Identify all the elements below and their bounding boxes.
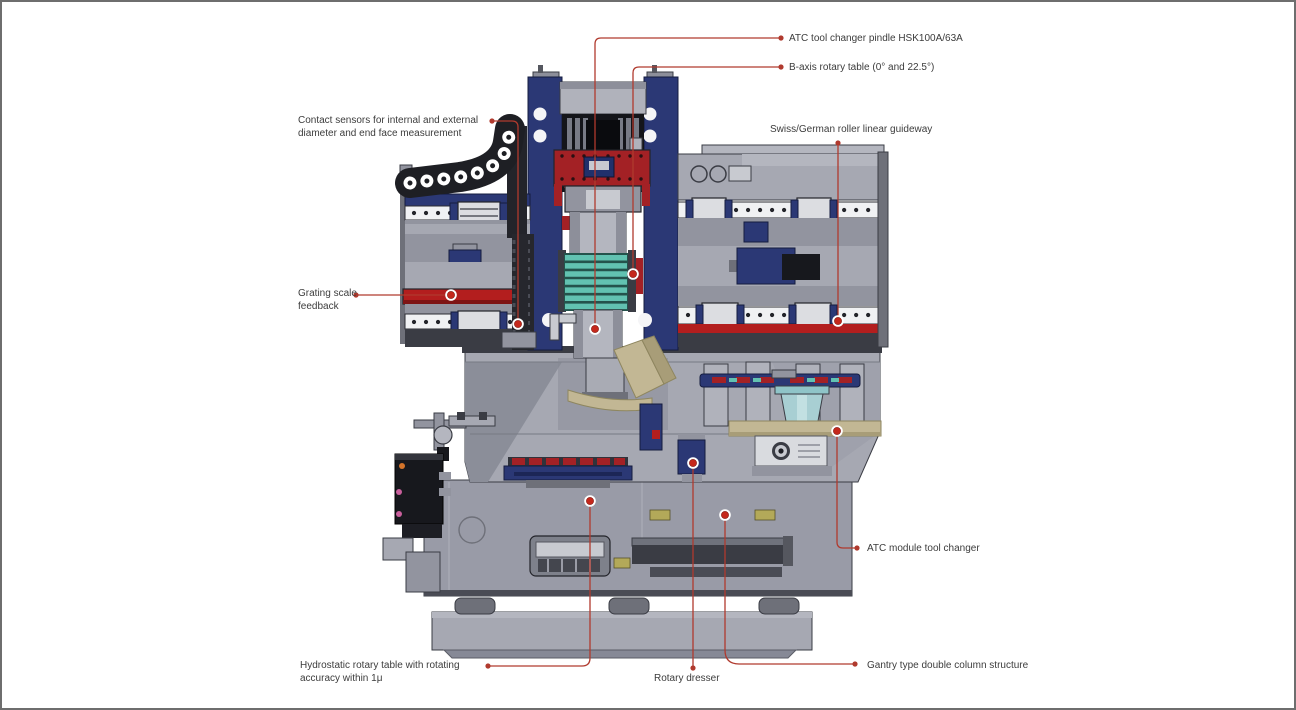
indicator-dot — [399, 463, 405, 469]
callout-marker-atc-module — [831, 425, 843, 437]
callout-marker-atc-spindle — [589, 323, 601, 335]
indicator-dot — [396, 489, 402, 495]
callout-label-atc-module: ATC module tool changer — [867, 542, 980, 555]
diagram-canvas: ATC tool changer pindle HSK100A/63A B-ax… — [0, 0, 1296, 710]
callout-label-grating-scale: Grating scale feedback — [298, 287, 357, 313]
callout-marker-gantry-structure — [719, 509, 731, 521]
callout-marker-linear-guideway — [832, 315, 844, 327]
machine-illustration — [2, 2, 1296, 710]
indicator-dot — [396, 511, 402, 517]
badge — [650, 510, 670, 520]
callout-label-hydrostatic-table: Hydrostatic rotary table with rotating a… — [300, 659, 460, 685]
callout-label-b-axis: B-axis rotary table (0° and 22.5°) — [789, 61, 934, 74]
callout-label-contact-sensors: Contact sensors for internal and externa… — [298, 114, 478, 140]
callout-marker-b-axis — [627, 268, 639, 280]
callout-label-atc-spindle: ATC tool changer pindle HSK100A/63A — [789, 32, 963, 45]
badge — [755, 510, 775, 520]
right-guideway-assembly — [678, 145, 888, 347]
callout-marker-hydrostatic-table — [584, 495, 596, 507]
spindle-bellows — [558, 250, 643, 312]
callout-marker-grating-scale — [445, 289, 457, 301]
callout-label-linear-guideway: Swiss/German roller linear guideway — [770, 123, 932, 136]
machine-base — [432, 598, 812, 658]
callout-label-rotary-dresser: Rotary dresser — [654, 672, 720, 685]
machine-body — [424, 480, 852, 596]
callout-marker-contact-sensors — [512, 318, 524, 330]
callout-marker-rotary-dresser — [687, 457, 699, 469]
callout-label-gantry-structure: Gantry type double column structure — [867, 659, 1028, 672]
badge — [614, 558, 630, 568]
